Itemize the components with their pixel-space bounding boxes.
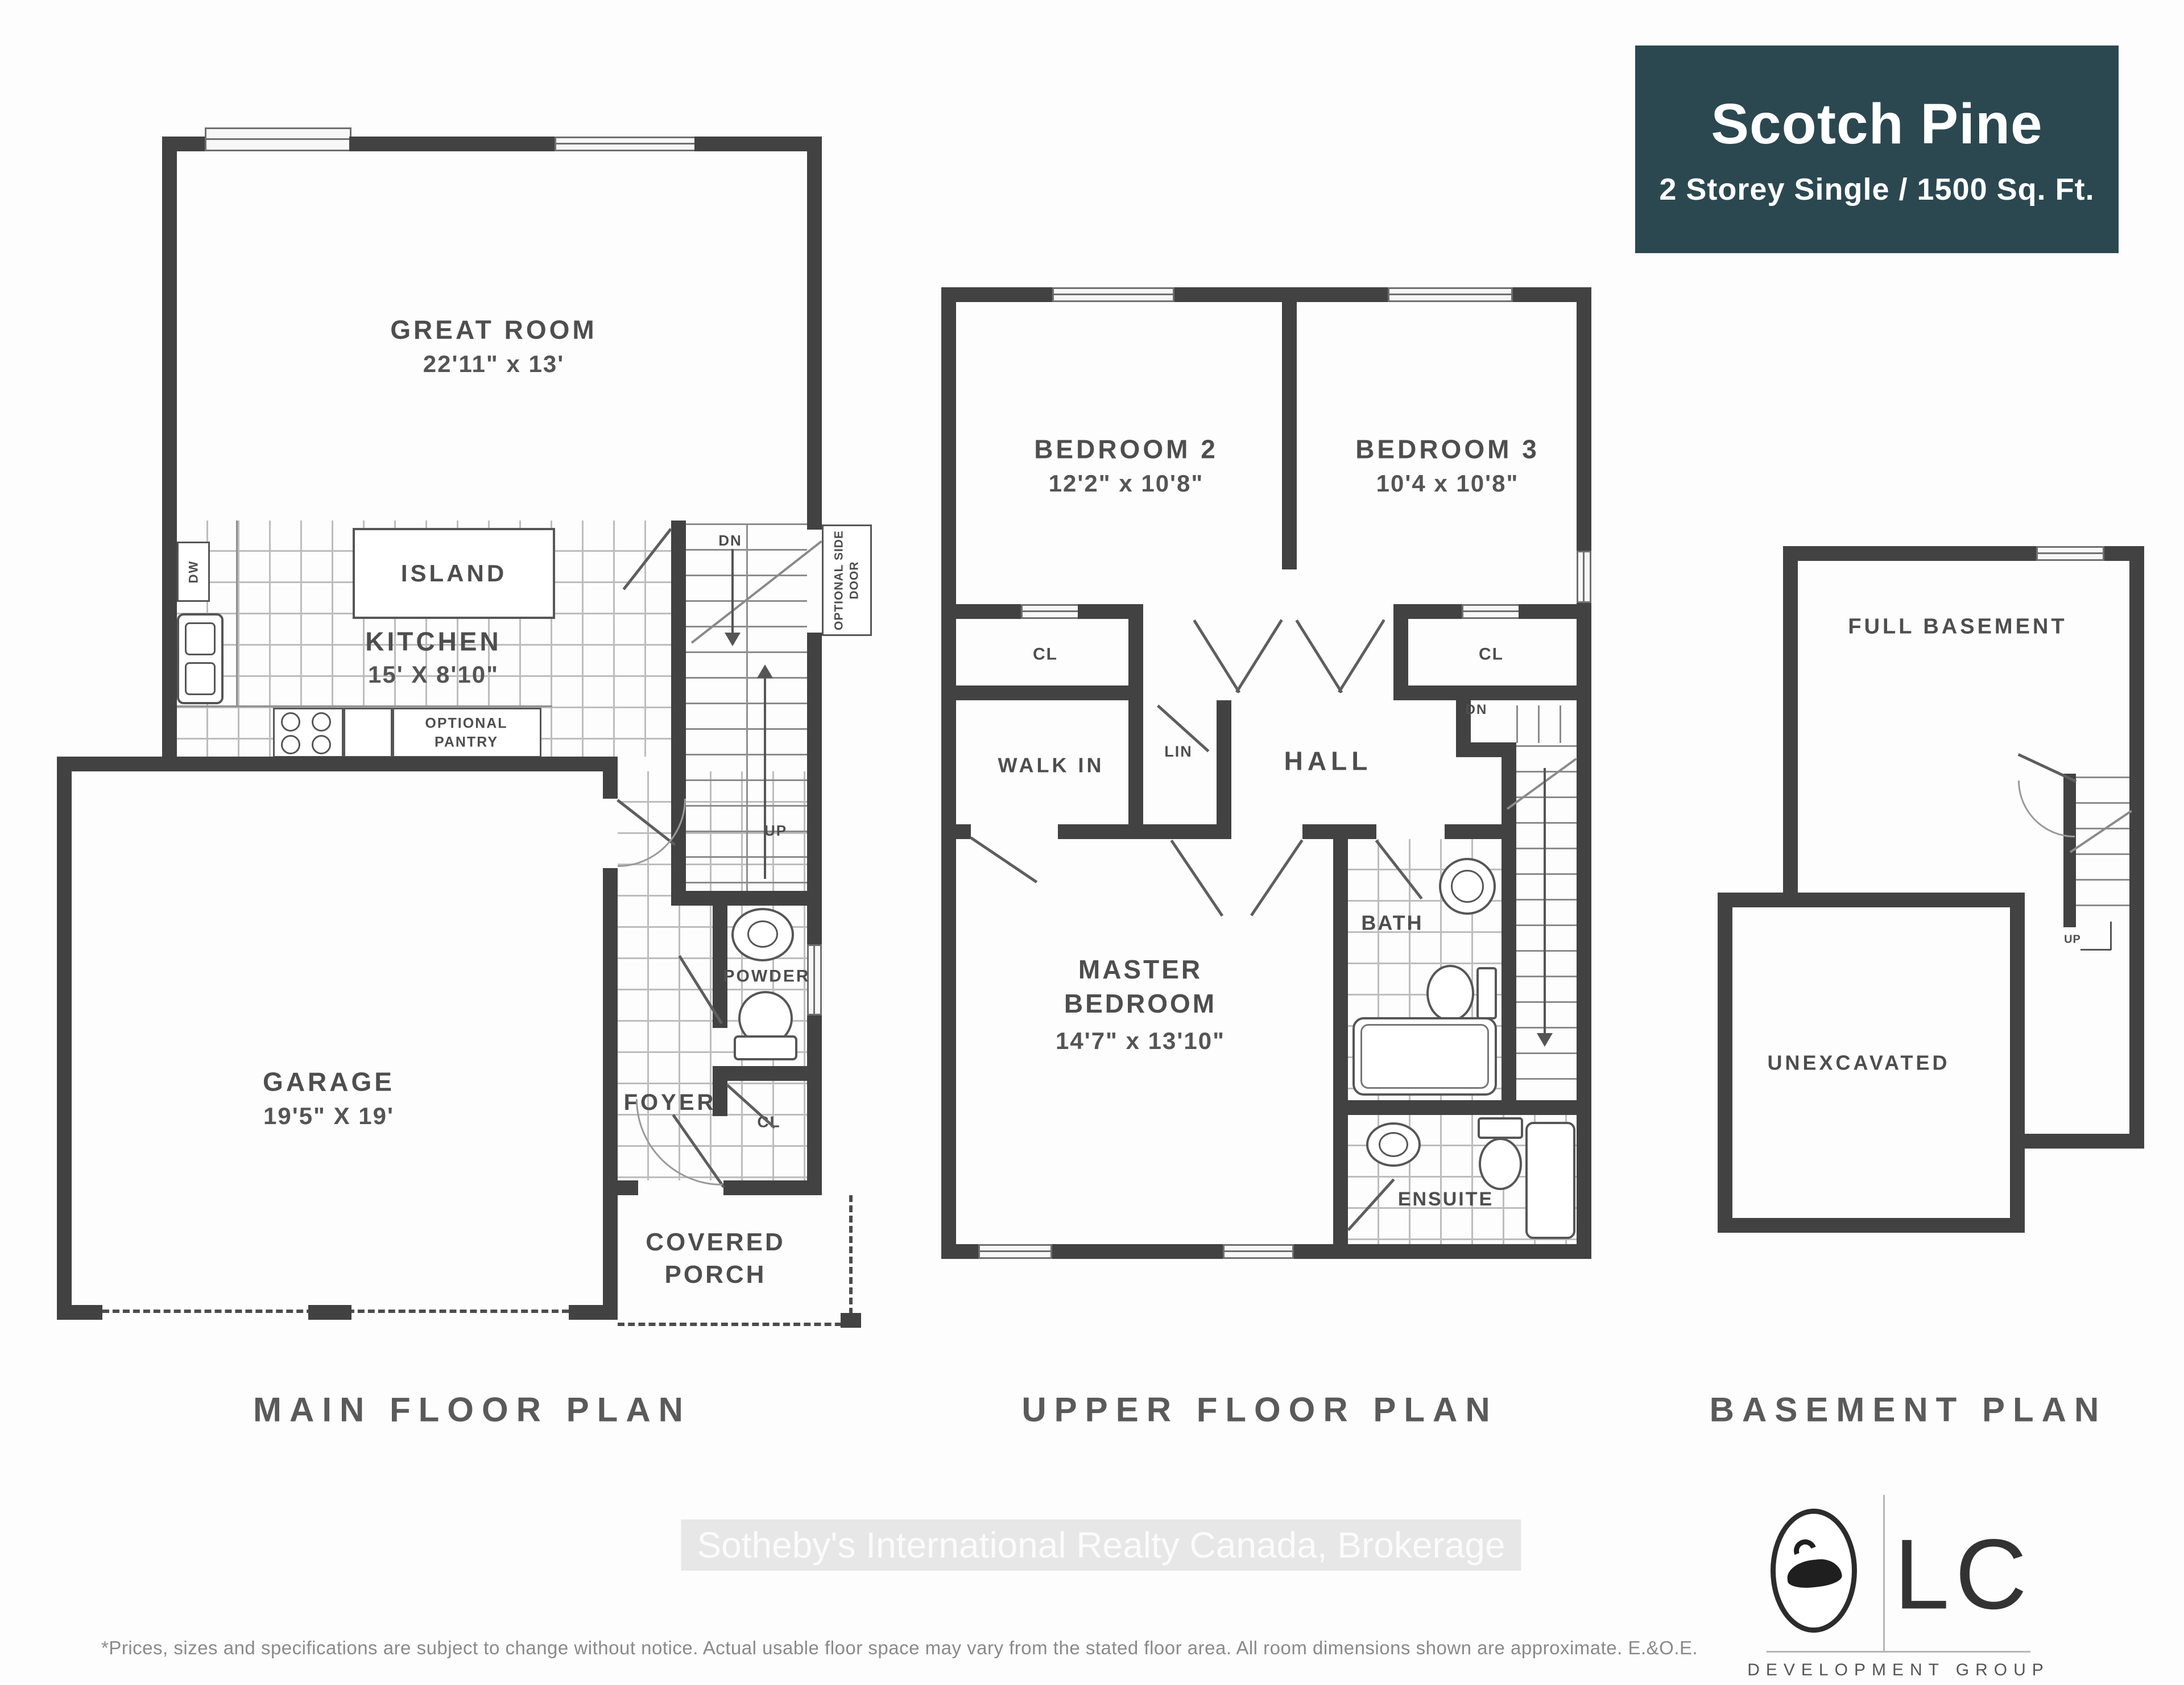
wall	[713, 1066, 822, 1081]
door-leaf	[1170, 840, 1224, 916]
wall	[941, 824, 971, 839]
window	[1052, 287, 1174, 302]
stair-arrow-line	[1544, 768, 1546, 1035]
dishwasher-label: DW	[185, 560, 201, 584]
kitchen-label: KITCHEN	[365, 625, 501, 658]
stairs-up-label: UP	[764, 821, 787, 840]
window	[978, 1244, 1052, 1259]
staircase	[1516, 745, 1577, 1100]
counter-edge	[177, 705, 552, 707]
arrow-up-icon	[757, 664, 773, 678]
wall	[807, 137, 822, 530]
stairs-dn-label: DN	[1466, 701, 1488, 718]
arrow-down-icon	[725, 633, 741, 646]
ensuite-label: ENSUITE	[1398, 1187, 1494, 1212]
logo-divider	[1883, 1495, 1885, 1651]
full-basement-label: FULL BASEMENT	[1848, 613, 2067, 641]
bathtub-inner	[1360, 1024, 1489, 1089]
ensuite-sink-bowl	[1379, 1132, 1408, 1157]
window	[1223, 1244, 1294, 1259]
wall	[1718, 893, 2025, 907]
wall	[1783, 546, 1798, 907]
stove-burner	[312, 735, 331, 754]
main-floor-plan-title: MAIN FLOOR PLAN	[253, 1390, 691, 1430]
wall	[162, 137, 177, 771]
wall	[349, 137, 557, 151]
ensuite-toilet-tank	[1478, 1117, 1523, 1139]
bedroom3-dims: 10'4 x 10'8"	[1376, 470, 1519, 497]
master-bedroom-label: MASTER BEDROOM	[1021, 953, 1260, 1021]
stairs-dn-label: DN	[718, 531, 742, 550]
garage-label: GARAGE	[263, 1065, 395, 1098]
door-leaf	[1193, 620, 1240, 693]
closet-label: CL	[1479, 643, 1504, 665]
closet-door	[1021, 604, 1083, 619]
door-leaf	[1295, 620, 1343, 693]
bath-toilet-tank	[1476, 967, 1497, 1019]
wall	[1217, 700, 1231, 839]
wall	[1718, 1218, 2025, 1233]
window	[1577, 551, 1591, 603]
stair-arrow-line	[2080, 949, 2111, 951]
door-leaf	[970, 836, 1037, 883]
porch-boundary	[849, 1195, 853, 1325]
kitchen-sink-basin	[185, 622, 216, 655]
wall	[1282, 302, 1297, 569]
garage-door-post	[308, 1305, 351, 1320]
master-bedroom-dims: 14'7" x 13'10"	[1056, 1027, 1225, 1055]
covered-porch-label: COVERED PORCH	[613, 1226, 818, 1291]
door-leaf	[1235, 619, 1283, 693]
disclaimer-text: *Prices, sizes and specifications are su…	[101, 1637, 1698, 1659]
optional-pantry-label: OPTIONAL PANTRY	[407, 715, 526, 751]
wall	[618, 1180, 638, 1195]
bedroom2-label: BEDROOM 2	[1034, 433, 1218, 466]
wall	[723, 1180, 822, 1195]
stair-stringer	[746, 523, 748, 892]
island-label: ISLAND	[401, 559, 507, 589]
door-leaf	[2018, 753, 2077, 783]
wall	[1058, 824, 1172, 839]
plan-subtitle: 2 Storey Single / 1500 Sq. Ft.	[1659, 172, 2094, 207]
wall	[57, 1305, 102, 1320]
porch-boundary	[618, 1323, 852, 1326]
wall	[1718, 893, 1732, 1233]
garage-dims: 19'5" X 19'	[263, 1102, 394, 1130]
stove-burner	[312, 712, 331, 732]
bedroom3-label: BEDROOM 3	[1355, 433, 1540, 466]
wall	[941, 287, 956, 1259]
counter-edge	[236, 521, 238, 705]
powder-label: POWDER	[723, 965, 810, 987]
basement-plan-title: BASEMENT PLAN	[1710, 1390, 2107, 1430]
wall	[57, 757, 72, 1320]
wall	[1333, 824, 1348, 1244]
floor-plan-sheet: Scotch Pine 2 Storey Single / 1500 Sq. F…	[0, 0, 2184, 1685]
logo-rule	[1767, 1651, 2030, 1653]
wall	[2129, 546, 2144, 1149]
window	[555, 137, 697, 151]
great-room-label: GREAT ROOM	[390, 313, 597, 346]
bath-toilet-bowl	[1426, 965, 1474, 1022]
porch-post	[841, 1313, 861, 1328]
stove-burner	[281, 735, 300, 754]
great-room-dims: 22'11" x 13'	[423, 350, 564, 378]
kitchen-cabinet	[344, 708, 392, 758]
wall	[57, 757, 618, 771]
wall	[2010, 1134, 2144, 1149]
wall	[2010, 893, 2025, 1233]
powder-sink-bowl	[747, 920, 778, 948]
door-swing-arc	[2018, 780, 2075, 837]
bath-sink-bowl	[1451, 870, 1484, 903]
window	[2036, 546, 2104, 561]
wall	[807, 633, 822, 1195]
door-leaf	[1250, 839, 1304, 916]
upper-floor-plan-title: UPPER FLOOR PLAN	[1021, 1390, 1498, 1430]
brokerage-watermark: Sotheby's International Realty Canada, B…	[681, 1519, 1521, 1571]
walk-in-label: WALK IN	[998, 753, 1105, 778]
wall	[603, 771, 618, 799]
bath-label: BATH	[1361, 910, 1423, 936]
stair-landing	[1516, 705, 1577, 743]
ensuite-toilet-bowl	[1479, 1138, 1522, 1190]
stair-arrow-line	[2110, 922, 2112, 950]
kitchen-sink-basin	[185, 662, 216, 695]
wall	[1456, 742, 1516, 757]
staircase	[2076, 777, 2129, 926]
ensuite-shower	[1525, 1122, 1575, 1239]
wall	[694, 137, 822, 151]
wall	[1333, 824, 1376, 839]
wall	[1128, 700, 1143, 839]
window	[1388, 287, 1513, 302]
window	[205, 127, 351, 151]
wall	[1577, 287, 1591, 1259]
wall	[941, 685, 1143, 700]
wall	[671, 521, 686, 906]
linen-label: LIN	[1164, 742, 1193, 762]
wall	[1333, 1100, 1577, 1115]
closet-label: CL	[1033, 643, 1058, 665]
kitchen-dims: 15' X 8'10"	[368, 661, 499, 688]
title-card: Scotch Pine 2 Storey Single / 1500 Sq. F…	[1635, 46, 2119, 253]
stairs-up-label: UP	[2064, 933, 2081, 947]
unexcavated-label: UNEXCAVATED	[1767, 1050, 1950, 1076]
stair-arrow-line	[731, 549, 734, 634]
wall	[941, 604, 1027, 619]
optional-side-door-label: OPTIONAL SIDE DOOR	[832, 526, 863, 634]
wall	[1393, 685, 1577, 700]
plan-name: Scotch Pine	[1711, 92, 2042, 157]
arrow-down-icon	[1537, 1033, 1553, 1047]
stove-burner	[281, 712, 300, 732]
bedroom2-dims: 12'2" x 10'8"	[1049, 470, 1204, 497]
powder-toilet-tank	[734, 1035, 797, 1060]
hall-label: HALL	[1284, 745, 1372, 778]
closet-door	[1462, 604, 1524, 619]
stair-arrow-line	[764, 677, 766, 879]
logo-monogram: LC	[1894, 1518, 2033, 1632]
logo-subtext: DEVELOPMENT GROUP	[1747, 1661, 2050, 1680]
wall	[1519, 604, 1591, 619]
wall	[686, 891, 822, 906]
door-leaf	[1338, 619, 1385, 693]
